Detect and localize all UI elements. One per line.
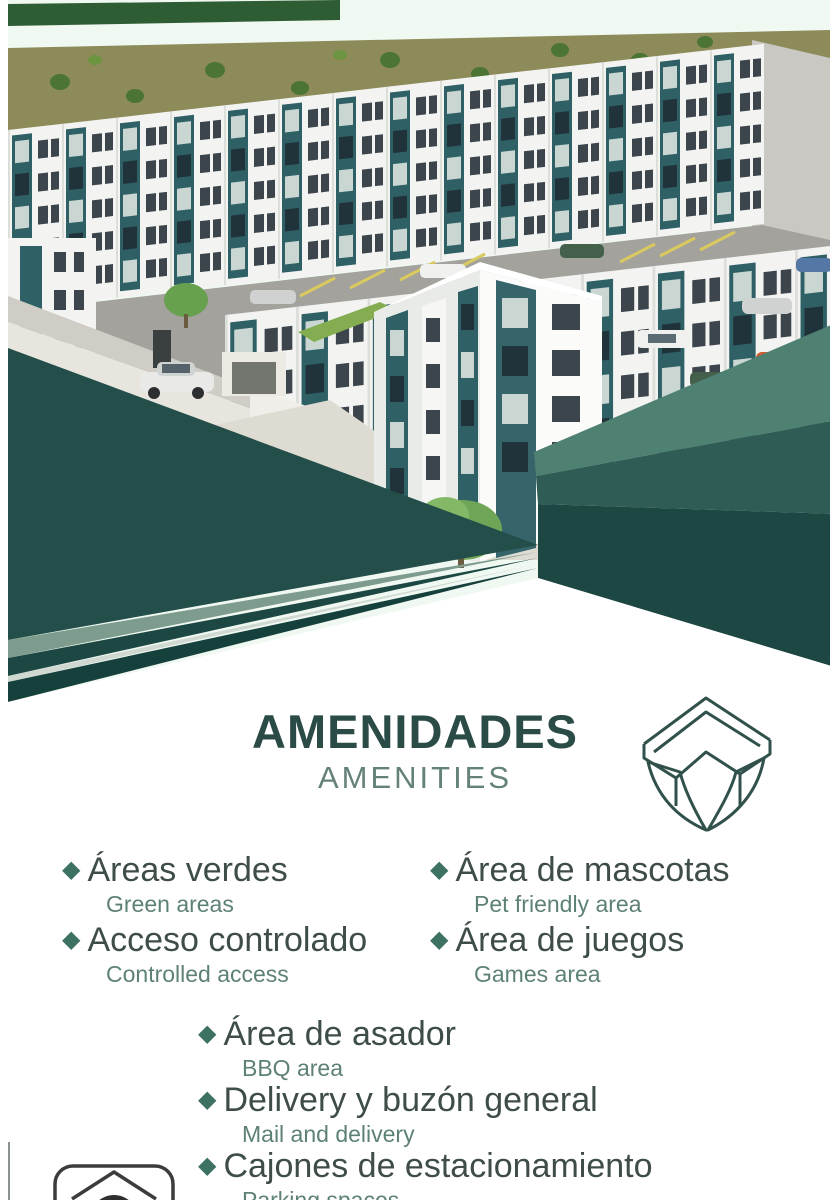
amenity-name: Acceso controlado (87, 920, 367, 960)
amenity-translation: BBQ area (242, 1055, 456, 1082)
cube-leaf-logo-icon (630, 678, 780, 833)
amenity-translation: Games area (474, 961, 684, 988)
amenity-item: ◆ Área de juegos Games area (430, 920, 684, 988)
amenity-item: ◆ Área de mascotas Pet friendly area (430, 850, 730, 918)
amenity-item: ◆ Áreas verdes Green areas (62, 850, 288, 918)
diamond-bullet-icon: ◆ (198, 1080, 216, 1118)
amenity-item: ◆ Delivery y buzón general Mail and deli… (198, 1080, 598, 1148)
left-edge-line (8, 1142, 10, 1200)
amenity-translation: Green areas (106, 891, 288, 918)
amenity-translation: Pet friendly area (474, 891, 730, 918)
amenity-translation: Parking spaces (242, 1187, 653, 1200)
amenity-item: ◆ Acceso controlado Controlled access (62, 920, 367, 988)
amenity-translation: Controlled access (106, 961, 367, 988)
amenity-name: Área de asador (223, 1014, 456, 1054)
diamond-bullet-icon: ◆ (62, 850, 80, 888)
diamond-bullet-icon: ◆ (430, 850, 448, 888)
amenity-name: Cajones de estacionamiento (223, 1146, 652, 1186)
diamond-bullet-icon: ◆ (430, 920, 448, 958)
diamond-bullet-icon: ◆ (198, 1014, 216, 1052)
diamond-bullet-icon: ◆ (62, 920, 80, 958)
amenity-translation: Mail and delivery (242, 1121, 598, 1148)
amenity-name: Áreas verdes (87, 850, 287, 890)
amenity-name: Área de juegos (455, 920, 684, 960)
amenity-name: Delivery y buzón general (223, 1080, 597, 1120)
diamond-bullet-icon: ◆ (198, 1146, 216, 1184)
house-circle-logo-icon (52, 1163, 182, 1200)
development-aerial-rendering (0, 0, 838, 720)
amenity-item: ◆ Cajones de estacionamiento Parking spa… (198, 1146, 653, 1200)
real-estate-flyer: AMENIDADES AMENITIES ◆ Áreas verdes Gree… (0, 0, 838, 1200)
amenity-name: Área de mascotas (455, 850, 729, 890)
amenity-item: ◆ Área de asador BBQ area (198, 1014, 456, 1082)
